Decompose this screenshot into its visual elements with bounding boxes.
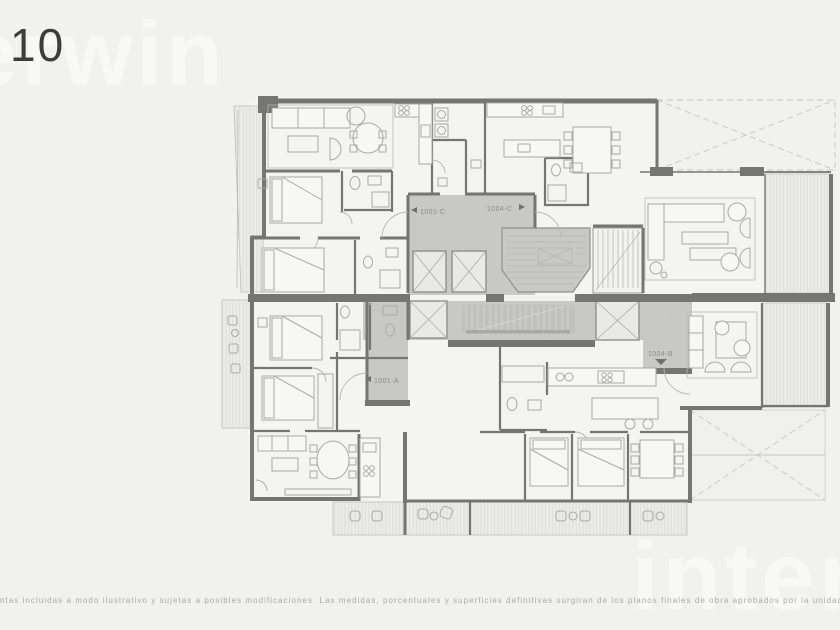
staircase-secondary bbox=[593, 228, 643, 293]
elevator-shaft bbox=[596, 301, 639, 340]
unit-label-1001a: 1001-A bbox=[374, 378, 399, 385]
staircase-corridor bbox=[462, 305, 575, 334]
disclaimer-text: ntas incluidas a modo ilustrativo y suje… bbox=[0, 596, 840, 605]
unit-label-1004c: 1004-C bbox=[487, 206, 512, 213]
void-top-right bbox=[657, 100, 835, 170]
floor-number: 10 bbox=[10, 18, 65, 72]
elevator-shaft bbox=[410, 301, 447, 338]
unit-label-1001c: 1001-C bbox=[420, 209, 445, 216]
elevator-shaft bbox=[452, 251, 486, 292]
void-bottom-right bbox=[690, 410, 825, 500]
page: erwin interw bbox=[0, 0, 840, 630]
floor-plan-svg: 1001-C 1004-C 1001-A 1004-B bbox=[0, 0, 840, 630]
unit-label-1004b: 1004-B bbox=[648, 351, 673, 358]
elevator-shaft bbox=[413, 251, 446, 292]
